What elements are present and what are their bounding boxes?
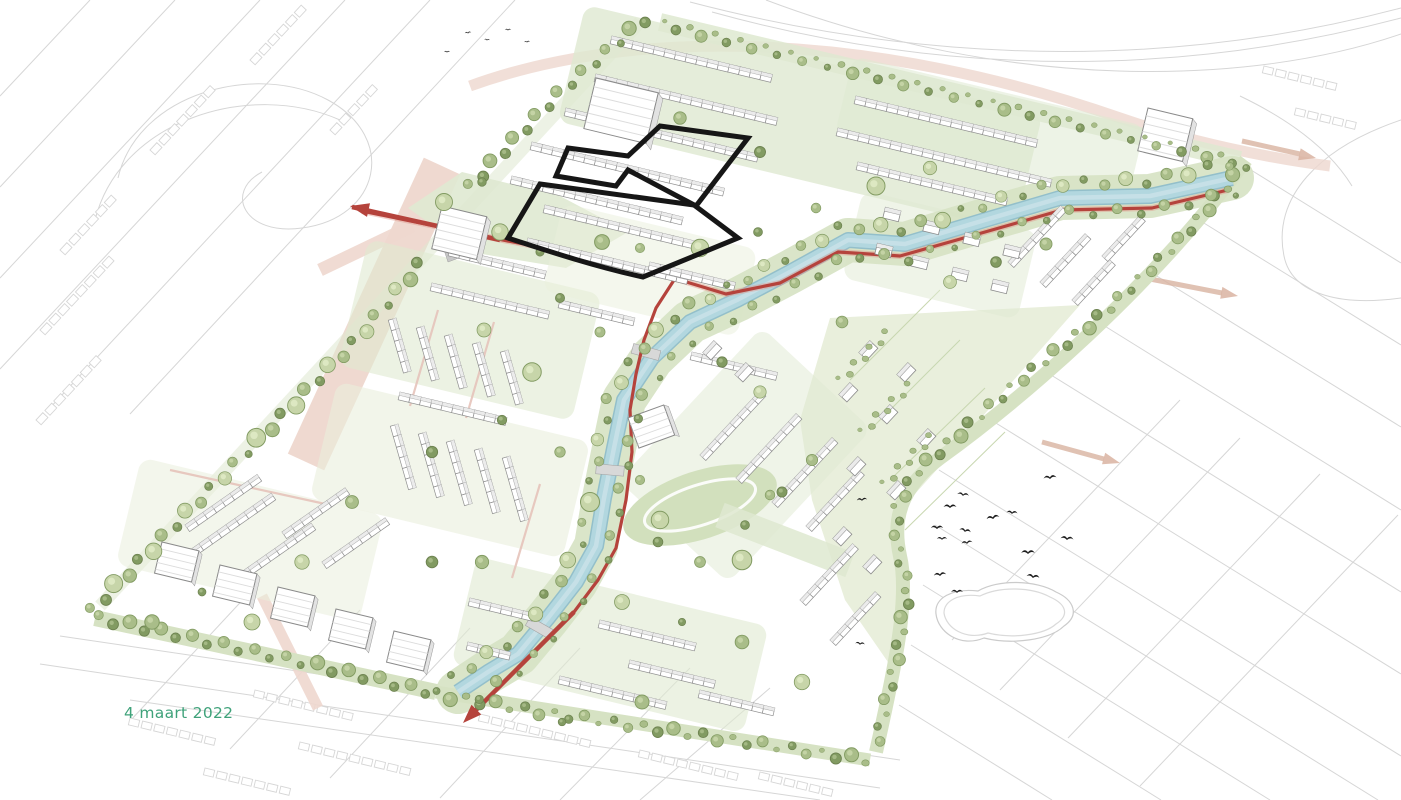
context-house bbox=[89, 356, 101, 368]
tree-icon bbox=[467, 664, 477, 674]
tree-icon bbox=[123, 615, 137, 629]
tree-icon bbox=[1047, 344, 1059, 356]
tree-icon bbox=[1076, 124, 1084, 132]
tree-icon bbox=[874, 722, 882, 730]
context-house bbox=[1262, 66, 1273, 75]
tree-icon bbox=[867, 177, 885, 195]
tree-icon bbox=[916, 470, 923, 476]
tree-icon bbox=[887, 669, 894, 674]
context-house bbox=[69, 233, 81, 245]
context-house bbox=[294, 5, 306, 17]
tree-icon bbox=[735, 635, 749, 649]
tree-icon bbox=[915, 215, 927, 227]
tree-icon bbox=[903, 599, 914, 610]
bird-icon bbox=[1043, 475, 1056, 480]
tree-icon bbox=[1015, 104, 1022, 110]
tree-icon bbox=[757, 736, 768, 747]
tree-icon bbox=[906, 460, 913, 466]
tree-icon bbox=[1018, 375, 1029, 386]
context-house bbox=[349, 754, 360, 763]
tree-icon bbox=[374, 671, 387, 684]
tree-icon bbox=[108, 619, 119, 630]
tree-icon bbox=[1128, 287, 1136, 295]
tree-icon bbox=[923, 161, 936, 174]
tree-icon bbox=[788, 742, 796, 750]
context-house bbox=[771, 775, 782, 784]
tree-icon bbox=[85, 603, 94, 612]
context-house bbox=[714, 768, 725, 777]
tree-icon bbox=[903, 571, 912, 580]
tree-icon bbox=[891, 503, 897, 508]
context-house bbox=[95, 205, 107, 217]
tree-icon bbox=[389, 682, 399, 692]
tree-icon bbox=[900, 490, 912, 502]
tree-icon bbox=[1203, 204, 1216, 217]
tree-icon bbox=[935, 212, 951, 228]
context-line bbox=[1199, 220, 1401, 345]
house-icon bbox=[649, 209, 662, 219]
tree-icon bbox=[615, 595, 630, 610]
context-house bbox=[250, 53, 262, 65]
context-line bbox=[991, 420, 1401, 674]
tree-icon bbox=[551, 636, 557, 642]
tree-icon bbox=[748, 301, 757, 310]
tree-icon bbox=[591, 433, 604, 446]
bird-icon bbox=[1026, 574, 1039, 579]
house-icon bbox=[512, 263, 525, 273]
tree-icon bbox=[1172, 232, 1184, 244]
tree-icon bbox=[952, 245, 958, 251]
tree-icon bbox=[558, 718, 566, 726]
tree-icon bbox=[893, 654, 905, 666]
context-house bbox=[329, 708, 340, 717]
tree-icon bbox=[640, 17, 651, 28]
tree-icon bbox=[94, 610, 103, 619]
context-house bbox=[216, 771, 227, 780]
tree-icon bbox=[475, 555, 488, 568]
tree-icon bbox=[540, 590, 549, 599]
tree-icon bbox=[1161, 168, 1172, 179]
context-house bbox=[399, 766, 410, 775]
tree-icon bbox=[205, 482, 213, 490]
context-line bbox=[1251, 170, 1401, 263]
context-line bbox=[1068, 474, 1320, 738]
tree-icon bbox=[1100, 180, 1110, 190]
tree-icon bbox=[717, 357, 727, 367]
tree-icon bbox=[914, 80, 920, 85]
tree-icon bbox=[617, 40, 624, 47]
tree-icon bbox=[545, 103, 554, 112]
context-house bbox=[478, 714, 489, 723]
tree-icon bbox=[436, 194, 453, 211]
tree-icon bbox=[1056, 180, 1069, 193]
tree-icon bbox=[506, 131, 519, 144]
context-line bbox=[0, 0, 175, 187]
tree-icon bbox=[198, 588, 206, 596]
tree-icon bbox=[684, 733, 691, 739]
house-icon bbox=[628, 204, 641, 214]
tree-icon bbox=[101, 594, 112, 605]
tree-icon bbox=[575, 65, 586, 76]
context-line bbox=[130, 592, 250, 721]
tree-icon bbox=[806, 454, 817, 465]
tree-icon bbox=[1020, 193, 1027, 200]
tree-icon bbox=[744, 276, 753, 285]
tree-icon bbox=[368, 310, 378, 320]
house-icon bbox=[690, 352, 703, 362]
tree-icon bbox=[1218, 152, 1224, 157]
tree-icon bbox=[594, 457, 603, 466]
house-icon bbox=[612, 313, 625, 323]
tree-icon bbox=[123, 569, 136, 582]
tree-icon bbox=[1142, 135, 1147, 139]
tree-icon bbox=[1063, 341, 1073, 351]
context-house bbox=[1300, 75, 1311, 84]
tree-icon bbox=[342, 663, 356, 677]
tree-icon bbox=[1233, 193, 1239, 199]
tree-icon bbox=[943, 438, 951, 444]
tree-icon bbox=[218, 472, 231, 485]
tree-icon bbox=[875, 736, 885, 746]
context-house bbox=[1307, 111, 1318, 120]
tree-icon bbox=[555, 293, 564, 302]
tree-icon bbox=[657, 375, 663, 381]
tree-icon bbox=[695, 557, 706, 568]
context-line bbox=[935, 525, 1378, 800]
tree-icon bbox=[940, 86, 946, 91]
context-house bbox=[1288, 72, 1299, 81]
tree-icon bbox=[580, 492, 599, 511]
tree-icon bbox=[845, 748, 859, 762]
tree-icon bbox=[250, 644, 261, 655]
tree-icon bbox=[900, 393, 906, 398]
tree-icon bbox=[389, 282, 402, 295]
tree-icon bbox=[836, 316, 848, 328]
context-house bbox=[229, 774, 240, 783]
tree-icon bbox=[897, 228, 906, 237]
context-house bbox=[45, 403, 57, 415]
context-house bbox=[104, 195, 116, 207]
tree-icon bbox=[1181, 168, 1196, 183]
house-icon bbox=[622, 315, 635, 325]
tree-icon bbox=[196, 497, 207, 508]
house-icon bbox=[669, 175, 682, 185]
context-house bbox=[579, 738, 590, 747]
tree-icon bbox=[1168, 141, 1173, 145]
tree-icon bbox=[1091, 309, 1102, 320]
tree-icon bbox=[145, 615, 159, 629]
context-house bbox=[311, 745, 322, 754]
tree-icon bbox=[560, 613, 568, 621]
tree-icon bbox=[926, 433, 932, 438]
bird-icon bbox=[444, 51, 450, 53]
context-house bbox=[298, 742, 309, 751]
context-house bbox=[60, 243, 72, 255]
context-route-arrow bbox=[1042, 442, 1104, 459]
bird-icon bbox=[986, 514, 999, 520]
tree-icon bbox=[958, 205, 964, 211]
tree-icon bbox=[1091, 123, 1097, 128]
context-house bbox=[203, 768, 214, 777]
context-line bbox=[1095, 320, 1401, 510]
tree-icon bbox=[1192, 214, 1199, 220]
tree-icon bbox=[275, 408, 285, 418]
tree-icon bbox=[814, 56, 819, 60]
tree-icon bbox=[754, 386, 766, 398]
house-icon bbox=[596, 197, 609, 207]
tree-icon bbox=[1203, 160, 1212, 169]
tree-icon bbox=[426, 446, 437, 457]
context-house bbox=[1326, 81, 1337, 90]
house-icon bbox=[594, 157, 607, 167]
tree-icon bbox=[560, 552, 576, 568]
context-house bbox=[362, 757, 373, 766]
tree-icon bbox=[732, 550, 752, 570]
tree-icon bbox=[910, 448, 916, 453]
tree-icon bbox=[868, 423, 875, 429]
context-house bbox=[1313, 78, 1324, 87]
context-house bbox=[689, 762, 700, 771]
tree-icon bbox=[610, 716, 618, 724]
tree-icon bbox=[506, 707, 513, 713]
tree-icon bbox=[890, 475, 897, 481]
tree-icon bbox=[512, 621, 523, 632]
tree-icon bbox=[556, 575, 568, 587]
context-house bbox=[387, 763, 398, 772]
tree-icon bbox=[742, 741, 751, 750]
tree-icon bbox=[1112, 291, 1121, 300]
tree-icon bbox=[360, 325, 374, 339]
house-icon bbox=[660, 212, 673, 222]
context-house bbox=[194, 95, 206, 107]
tree-icon bbox=[186, 629, 198, 641]
tree-icon bbox=[578, 518, 586, 526]
tree-icon bbox=[991, 99, 996, 103]
tree-icon bbox=[483, 154, 497, 168]
context-line bbox=[0, 0, 345, 369]
tree-icon bbox=[758, 259, 770, 271]
tree-icon bbox=[671, 25, 681, 35]
context-house bbox=[204, 736, 215, 745]
context-house bbox=[87, 214, 99, 226]
tree-icon bbox=[1112, 204, 1122, 214]
context-house bbox=[279, 786, 290, 795]
tree-icon bbox=[596, 721, 602, 726]
tree-icon bbox=[601, 393, 611, 403]
bird-icon bbox=[961, 540, 972, 545]
context-house bbox=[285, 15, 297, 27]
tree-icon bbox=[1169, 249, 1175, 254]
context-house bbox=[809, 784, 820, 793]
tree-icon bbox=[879, 249, 890, 260]
tree-icon bbox=[872, 412, 879, 418]
tree-icon bbox=[794, 674, 809, 689]
tree-icon bbox=[297, 661, 304, 668]
tree-icon bbox=[788, 50, 793, 54]
house-icon bbox=[541, 145, 554, 155]
context-line bbox=[1140, 515, 1398, 786]
tree-icon bbox=[984, 399, 994, 409]
context-house bbox=[529, 726, 540, 735]
house-icon bbox=[491, 258, 504, 268]
tree-icon bbox=[489, 695, 502, 708]
tree-icon bbox=[462, 693, 470, 699]
tree-icon bbox=[635, 243, 644, 252]
tree-icon bbox=[1090, 211, 1098, 219]
apartment-block bbox=[328, 609, 377, 653]
tree-icon bbox=[297, 383, 310, 396]
tree-icon bbox=[678, 618, 685, 625]
context-house bbox=[567, 735, 578, 744]
tree-icon bbox=[622, 436, 633, 447]
tree-icon bbox=[690, 341, 696, 347]
tree-icon bbox=[1135, 274, 1141, 279]
tree-icon bbox=[533, 709, 545, 721]
tree-icon bbox=[604, 416, 612, 424]
context-house bbox=[516, 723, 527, 732]
tree-icon bbox=[315, 376, 325, 386]
tree-icon bbox=[1007, 383, 1013, 388]
tree-icon bbox=[815, 273, 823, 281]
house-icon bbox=[584, 155, 597, 165]
context-house bbox=[702, 765, 713, 774]
tree-icon bbox=[622, 21, 636, 35]
tree-icon bbox=[889, 530, 900, 541]
tree-icon bbox=[976, 100, 983, 107]
masterplan-illustration bbox=[0, 0, 1401, 800]
tree-icon bbox=[580, 598, 587, 605]
tree-icon bbox=[846, 67, 859, 80]
tree-icon bbox=[1083, 321, 1097, 335]
context-line bbox=[1000, 438, 1240, 690]
tree-icon bbox=[653, 537, 663, 547]
tree-icon bbox=[898, 547, 904, 552]
tree-icon bbox=[773, 51, 781, 59]
tree-icon bbox=[949, 93, 959, 103]
context-house bbox=[1320, 114, 1331, 123]
tree-icon bbox=[593, 60, 601, 68]
context-route-arrowhead bbox=[1102, 453, 1120, 465]
tree-icon bbox=[1117, 129, 1122, 134]
context-house bbox=[1345, 120, 1356, 129]
tree-icon bbox=[674, 112, 686, 124]
tree-icon bbox=[477, 323, 491, 337]
context-house bbox=[203, 86, 215, 98]
tree-icon bbox=[595, 235, 610, 250]
tree-icon bbox=[831, 254, 842, 265]
tree-icon bbox=[895, 560, 903, 568]
tree-icon bbox=[774, 747, 780, 752]
context-line bbox=[911, 645, 1161, 800]
bird-icon bbox=[855, 642, 865, 646]
tree-icon bbox=[904, 381, 910, 386]
context-line bbox=[899, 705, 1052, 800]
bird-icon bbox=[465, 31, 472, 34]
tree-icon bbox=[613, 483, 623, 493]
tree-icon bbox=[1143, 180, 1152, 189]
tree-icon bbox=[979, 204, 987, 212]
tree-icon bbox=[1037, 180, 1046, 189]
context-house bbox=[822, 787, 833, 796]
tree-icon bbox=[1152, 141, 1161, 150]
tree-icon bbox=[579, 710, 590, 721]
context-house bbox=[36, 413, 48, 425]
tree-icon bbox=[635, 475, 644, 484]
tree-icon bbox=[551, 86, 562, 97]
tree-icon bbox=[595, 327, 605, 337]
context-house bbox=[168, 124, 180, 136]
tree-icon bbox=[347, 336, 356, 345]
tree-icon bbox=[338, 351, 350, 363]
tree-icon bbox=[411, 257, 422, 268]
context-route-arrow bbox=[1150, 279, 1222, 293]
tree-icon bbox=[177, 503, 192, 518]
context-house bbox=[54, 394, 66, 406]
tree-icon bbox=[555, 447, 566, 458]
tree-icon bbox=[901, 629, 908, 635]
tree-icon bbox=[858, 428, 863, 432]
tree-icon bbox=[295, 555, 309, 569]
context-house bbox=[150, 143, 162, 155]
house-icon bbox=[617, 202, 630, 212]
context-line bbox=[1147, 270, 1401, 427]
tree-icon bbox=[1205, 189, 1216, 200]
tree-icon bbox=[925, 88, 933, 96]
tree-icon bbox=[480, 646, 493, 659]
tree-icon bbox=[1153, 253, 1162, 262]
tree-icon bbox=[671, 315, 680, 324]
context-house bbox=[796, 781, 807, 790]
tree-icon bbox=[639, 343, 650, 354]
pond-inner-outline bbox=[944, 589, 1065, 636]
context-house bbox=[1294, 108, 1305, 117]
tree-icon bbox=[830, 753, 841, 764]
context-house bbox=[154, 724, 165, 733]
tree-icon bbox=[979, 415, 984, 419]
house-icon bbox=[502, 261, 515, 271]
tree-icon bbox=[737, 37, 743, 42]
house-icon bbox=[605, 160, 618, 170]
tree-icon bbox=[651, 511, 669, 529]
tree-icon bbox=[615, 376, 629, 390]
context-house bbox=[342, 711, 353, 720]
tree-icon bbox=[687, 24, 694, 30]
house-icon bbox=[691, 181, 704, 191]
tree-icon bbox=[503, 643, 511, 651]
tree-icon bbox=[405, 679, 417, 691]
tree-icon bbox=[288, 397, 305, 414]
tree-icon bbox=[616, 509, 624, 517]
context-house bbox=[166, 727, 177, 736]
tree-icon bbox=[862, 356, 869, 362]
tree-icon bbox=[652, 727, 663, 738]
tree-icon bbox=[667, 352, 675, 360]
context-house bbox=[241, 777, 252, 786]
tree-icon bbox=[962, 417, 973, 428]
context-house bbox=[78, 224, 90, 236]
tree-icon bbox=[889, 74, 895, 79]
tree-icon bbox=[711, 735, 723, 747]
tree-icon bbox=[901, 587, 909, 594]
tree-icon bbox=[247, 428, 266, 447]
context-line bbox=[0, 0, 90, 96]
tree-icon bbox=[712, 31, 718, 36]
tree-icon bbox=[996, 191, 1007, 202]
tree-icon bbox=[523, 125, 533, 135]
tree-icon bbox=[1119, 172, 1133, 186]
tree-icon bbox=[648, 322, 663, 337]
context-house bbox=[330, 123, 342, 135]
